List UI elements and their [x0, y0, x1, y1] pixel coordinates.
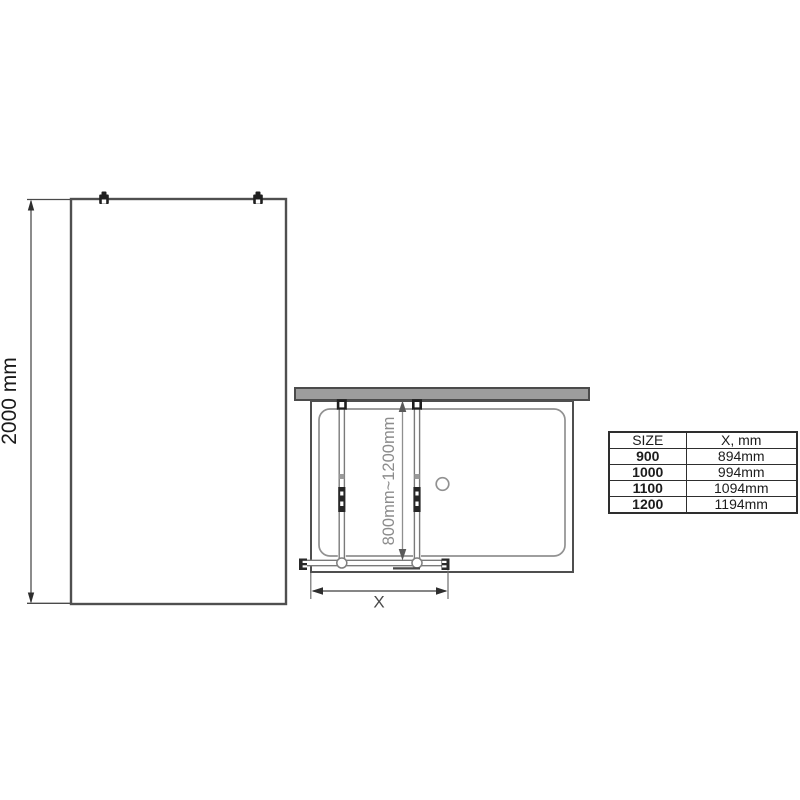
- x-cell: 1094mm: [686, 481, 797, 497]
- size-cell: 1200: [609, 497, 686, 514]
- table-row: 1000 994mm: [609, 465, 797, 481]
- side-elevation-view: 2000 mm: [0, 192, 286, 605]
- size-cell: 1000: [609, 465, 686, 481]
- bar-end-bracket-icon: [299, 559, 307, 571]
- height-dimension: 2000 mm: [0, 200, 70, 604]
- size-cell: 1100: [609, 481, 686, 497]
- table-row: 900 894mm: [609, 449, 797, 465]
- glass-panel-front: [71, 199, 286, 604]
- glass-clamp-icon: [253, 192, 263, 205]
- technical-diagram-page: 2000 mm: [0, 0, 800, 800]
- arrow-up-icon: [28, 200, 34, 211]
- width-dimension-label: X: [373, 593, 384, 612]
- depth-dimension: 800mm~1200mm: [380, 401, 406, 561]
- size-table-header-row: SIZE X, mm: [609, 432, 797, 449]
- plan-view: 800mm~1200mm X: [295, 388, 589, 612]
- x-cell: 994mm: [686, 465, 797, 481]
- shower-screen-drawing: 2000 mm: [0, 0, 800, 800]
- roller-icon: [337, 558, 347, 568]
- table-row: 1100 1094mm: [609, 481, 797, 497]
- wall-section: [295, 388, 589, 400]
- height-dimension-label: 2000 mm: [0, 357, 21, 445]
- size-cell: 900: [609, 449, 686, 465]
- support-bar-connector-icon: [413, 487, 420, 512]
- depth-dimension-label: 800mm~1200mm: [380, 417, 398, 546]
- size-table-header-x: X, mm: [686, 432, 797, 449]
- x-cell: 1194mm: [686, 497, 797, 514]
- panel-fitting-mark: [414, 474, 419, 479]
- arrow-left-icon: [312, 587, 324, 595]
- table-row: 1200 1194mm: [609, 497, 797, 514]
- width-dimension: X: [311, 571, 448, 612]
- glass-panel-plan-sliding: [412, 399, 422, 560]
- panel-fitting-mark: [339, 474, 344, 479]
- bar-end-bracket-icon: [442, 559, 450, 571]
- size-table-header-size: SIZE: [609, 432, 686, 449]
- arrow-right-icon: [436, 587, 448, 595]
- glass-clamp-icon: [99, 192, 109, 205]
- support-bar-connector-icon: [338, 487, 345, 512]
- x-cell: 894mm: [686, 449, 797, 465]
- arrow-down-icon: [28, 593, 34, 604]
- size-table: SIZE X, mm 900 894mm 1000 994mm 1100 109…: [608, 431, 798, 514]
- roller-icon: [412, 558, 422, 568]
- glass-panel-plan-fixed: [337, 399, 347, 560]
- drain-icon: [436, 478, 449, 491]
